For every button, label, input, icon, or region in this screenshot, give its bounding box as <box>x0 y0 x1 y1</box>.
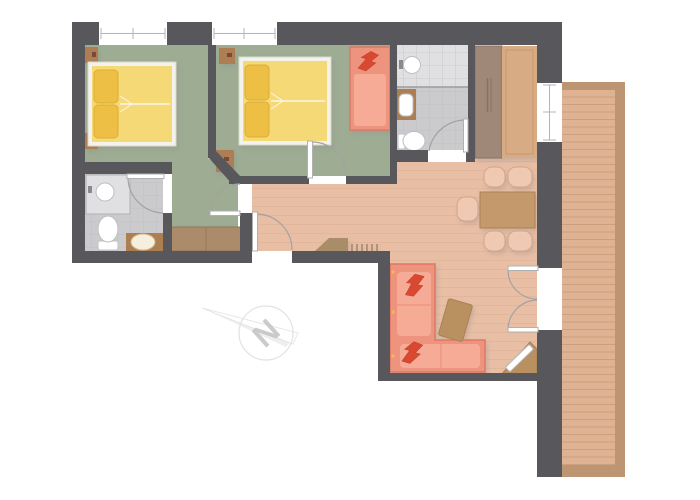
sofa-button <box>391 310 394 313</box>
dining-chair <box>508 231 532 251</box>
bed-pillow <box>94 105 118 138</box>
balcony-deck-planks <box>562 90 615 465</box>
dining-table <box>480 192 535 228</box>
wall-bottom-upper <box>72 251 390 263</box>
dining-chair <box>457 197 478 221</box>
dining-chair <box>484 167 505 187</box>
nightstand-lamp <box>92 52 96 57</box>
entrance-opening <box>252 251 292 263</box>
bed-pillow <box>94 70 118 103</box>
north-arrow: N <box>202 306 298 360</box>
door-leaf <box>508 328 538 333</box>
wall-between-bedrooms <box>208 45 216 158</box>
window-bedroom-1 <box>99 22 167 45</box>
bed-pillow <box>245 65 269 100</box>
door-leaf <box>127 174 164 179</box>
dining-chair <box>484 231 505 251</box>
wall-bathroom-1-top <box>72 162 172 174</box>
sofa-button <box>391 354 394 357</box>
dining-chair <box>508 167 532 187</box>
window-living-east <box>537 83 562 142</box>
wall-left <box>72 45 85 263</box>
door-leaf <box>210 211 240 216</box>
floor-plan-canvas: N <box>0 0 700 500</box>
floor-plan: N <box>0 0 700 500</box>
north-arrow-label: N <box>245 312 286 354</box>
wall-living-left <box>378 251 390 381</box>
balcony <box>562 82 625 477</box>
washbasin <box>399 94 413 116</box>
toilet-bowl <box>403 132 425 151</box>
door-leaf <box>308 141 313 178</box>
sofa-button <box>391 270 394 273</box>
shower-drain <box>96 183 114 201</box>
door-leaf <box>464 119 469 152</box>
wall-bedroom-1-right <box>240 213 252 251</box>
door-opening <box>309 176 346 184</box>
daybed-couch-seat <box>354 74 386 126</box>
wall-living-bottom <box>378 373 537 381</box>
shower-handle <box>399 60 403 69</box>
nightstand-lamp <box>227 53 232 57</box>
tall-wardrobe-dark <box>475 46 502 158</box>
window-bedroom-2 <box>212 22 277 45</box>
shower-drain <box>404 57 421 74</box>
bed-pillow <box>245 102 269 137</box>
door-opening <box>240 185 252 213</box>
door-opening <box>537 268 562 330</box>
washbasin <box>131 234 155 250</box>
door-leaf <box>508 266 538 271</box>
door-opening <box>163 174 172 213</box>
toilet-bowl <box>98 216 118 242</box>
door-leaf <box>253 212 258 251</box>
shower-handle <box>88 186 92 193</box>
wall-bathroom-2-right <box>468 45 475 162</box>
door-opening <box>428 150 466 162</box>
tall-wardrobe-light <box>502 46 537 158</box>
